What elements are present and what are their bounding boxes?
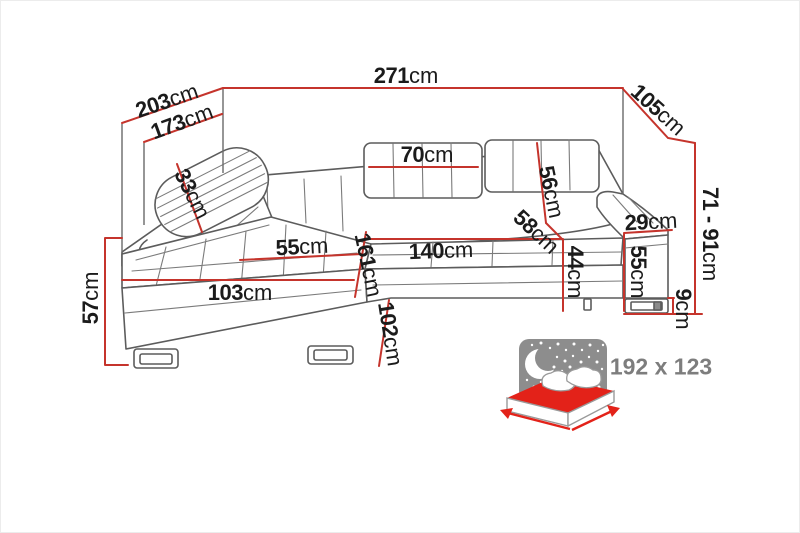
dim-height-range-label: 71 - 91cm — [699, 187, 721, 281]
dim-value: 102 — [373, 300, 403, 339]
dim-seat-width-right-label: 140cm — [408, 239, 473, 263]
dim-value: 70 — [401, 142, 424, 167]
dim-value: 71 - 91 — [698, 187, 723, 252]
dim-value: 44 — [563, 246, 588, 269]
dim-unit: cm — [424, 142, 453, 167]
dim-seat-height-label: 44cm — [564, 246, 586, 299]
sleeping-size-label: 192 x 123 — [610, 354, 712, 381]
dim-value: 55 — [626, 246, 651, 269]
dim-leg-height-label: 9cm — [672, 288, 694, 329]
dim-unit: cm — [626, 269, 651, 298]
dim-unit: cm — [647, 208, 678, 235]
dim-chaise-front-width-label: 103cm — [208, 282, 273, 304]
dim-unit: cm — [698, 252, 723, 281]
dim-unit: cm — [78, 272, 103, 301]
dim-value: 29 — [624, 209, 649, 235]
dim-total-width-label: 271cm — [374, 65, 439, 87]
dim-unit: cm — [671, 300, 696, 329]
dim-chaise-seat-width-label: 55cm — [275, 235, 329, 260]
dim-armrest-width-label: 29cm — [624, 210, 678, 235]
dim-value: 55 — [275, 234, 300, 260]
dim-value: 271 — [374, 63, 409, 88]
dim-armrest-height-label: 55cm — [627, 246, 649, 299]
dim-value: 140 — [408, 238, 444, 264]
sleeping-bed-icon — [500, 339, 620, 430]
dim-unit: cm — [379, 335, 408, 368]
dim-value: 9 — [671, 288, 696, 300]
dim-value: 103 — [208, 280, 243, 305]
dim-value: 57 — [78, 301, 103, 324]
dim-unit: cm — [243, 280, 272, 305]
dim-unit: cm — [563, 269, 588, 298]
dim-unit: cm — [443, 237, 473, 263]
dim-unit: cm — [409, 63, 438, 88]
dim-headrest-width-label: 70cm — [401, 144, 454, 166]
sofa-dimension-diagram: 271cm 203cm 173cm 105cm 71 - 91cm 70cm 5… — [0, 0, 800, 533]
bed-pillow-2 — [567, 367, 601, 388]
dim-unit: cm — [298, 233, 329, 260]
dim-chaise-height-label: 57cm — [80, 272, 102, 325]
